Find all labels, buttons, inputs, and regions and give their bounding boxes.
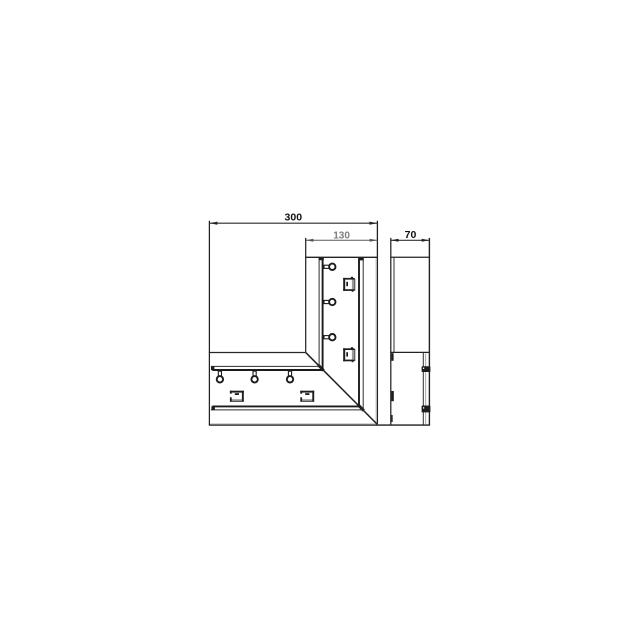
svg-text:130: 130 (333, 230, 350, 241)
svg-text:70: 70 (405, 229, 417, 241)
svg-text:300: 300 (285, 212, 303, 224)
